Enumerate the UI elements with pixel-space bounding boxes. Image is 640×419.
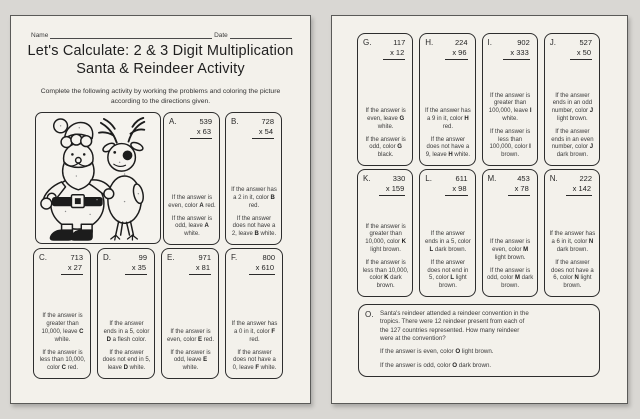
- multiplier: x 50: [570, 48, 592, 60]
- coloring-directions: If the answer is greater than 100,000, l…: [486, 93, 535, 161]
- direction-line: If the answer has a 2 in it, color B red…: [230, 187, 278, 210]
- problem-header: D. 99 x 35: [101, 252, 152, 275]
- multiplier: x 63: [190, 127, 212, 139]
- multiplication-problem: 453 x 78: [508, 174, 530, 196]
- direction-line: If the answer ends in a 5, color L dark …: [424, 231, 471, 254]
- worksheet-page-2: G. 117 x 12 If the answer is even, leave…: [331, 15, 628, 404]
- problem-box: A. 539 x 63 If the answer is even, color…: [163, 112, 220, 245]
- multiplication-problem: 99 x 35: [125, 253, 147, 275]
- name-blank-line: [50, 31, 212, 39]
- problem-box: F. 800 x 610 If the answer has a 0 in it…: [225, 248, 283, 379]
- problem-header: B. 728 x 54: [229, 116, 279, 139]
- direction-line: If the answer is even, leave G white.: [362, 108, 409, 131]
- coloring-directions: If the answer ends in a 5, color D a fle…: [101, 321, 152, 374]
- direction-line: If the answer is greater than 100,000, l…: [487, 93, 534, 124]
- problem-letter: B.: [231, 117, 239, 126]
- problem-row-ab: A. 539 x 63 If the answer is even, color…: [163, 112, 282, 245]
- multiplication-problem: 539 x 63: [190, 117, 212, 139]
- direction-line: If the answer is less than 100,000, colo…: [487, 129, 534, 160]
- problem-letter: N.: [550, 174, 558, 183]
- problem-letter: G.: [363, 38, 371, 47]
- multiplicand: 99: [125, 253, 147, 263]
- direction-line: If the answer is greater than 10,000, le…: [38, 313, 87, 344]
- word-problem-letter: O.: [365, 310, 377, 372]
- multiplicand: 611: [445, 174, 467, 184]
- multiplier: x 333: [503, 48, 529, 60]
- worksheet-page-1: Name Date Let's Calculate: 2 & 3 Digit M…: [10, 15, 311, 404]
- problem-letter: K.: [363, 174, 371, 183]
- problem-header: A. 539 x 63: [167, 116, 217, 139]
- multiplicand: 224: [445, 38, 467, 48]
- direction-line: If the answer is greater than 10,000, co…: [362, 224, 409, 255]
- multiplication-problem: 222 x 142: [566, 174, 592, 196]
- direction-line: If the answer is even, color M light bro…: [487, 239, 534, 262]
- multiplicand: 800: [249, 253, 275, 263]
- problem-row-cdef: C. 713 x 27 If the answer is greater tha…: [33, 248, 283, 379]
- multiplicand: 971: [189, 253, 211, 263]
- problem-box: K. 330 x 159 If the answer is greater th…: [357, 169, 413, 297]
- problem-box: B. 728 x 54 If the answer has a 2 in it,…: [225, 112, 282, 245]
- problem-box: H. 224 x 96 If the answer has a 9 in it,…: [419, 33, 475, 166]
- multiplication-problem: 971 x 81: [189, 253, 211, 275]
- direction-line: If the answer has a 9 in it, color H red…: [424, 108, 471, 131]
- problem-letter: C.: [39, 253, 47, 262]
- direction-line: If the answer does not end in 5, leave D…: [102, 350, 151, 373]
- multiplier: x 81: [189, 263, 211, 275]
- coloring-directions: If the answer has a 0 in it, color F red…: [229, 321, 280, 374]
- name-label: Name: [31, 32, 48, 39]
- problem-box: C. 713 x 27 If the answer is greater tha…: [33, 248, 91, 379]
- multiplier: x 54: [252, 127, 274, 139]
- worksheet-title-line1: Let's Calculate: 2 & 3 Digit Multiplicat…: [11, 43, 310, 59]
- problem-box: L. 611 x 98 If the answer ends in a 5, c…: [419, 169, 475, 297]
- direction-line: If the answer is less than 10,000, color…: [38, 350, 87, 373]
- direction-line: If the answer is odd, color G black.: [362, 137, 409, 160]
- problem-row-kn: K. 330 x 159 If the answer is greater th…: [357, 169, 600, 297]
- direction-line: If the answer is even, color E red.: [166, 329, 215, 345]
- problem-header: M. 453 x 78: [486, 173, 535, 196]
- problem-header: E. 971 x 81: [165, 252, 216, 275]
- direction-line: If the answer is less than 10,000, color…: [362, 260, 409, 291]
- name-date-row: Name Date: [31, 31, 294, 39]
- coloring-directions: If the answer has a 9 in it, color H red…: [423, 108, 472, 161]
- direction-line: If the answer is odd, color O dark brown…: [380, 362, 532, 370]
- multiplication-problem: 728 x 54: [252, 117, 274, 139]
- multiplier: x 610: [249, 263, 275, 275]
- problem-row-gj: G. 117 x 12 If the answer is even, leave…: [357, 33, 600, 166]
- coloring-directions: If the answer has a 6 in it, color N dar…: [548, 231, 597, 292]
- multiplicand: 222: [566, 174, 592, 184]
- worksheet-title-line2: Santa & Reindeer Activity: [11, 61, 310, 77]
- problem-header: C. 713 x 27: [37, 252, 88, 275]
- direction-line: If the answer does not have a 0, leave F…: [230, 350, 279, 373]
- direction-line: If the answer is odd, leave A white.: [168, 216, 216, 239]
- multiplicand: 902: [503, 38, 529, 48]
- problem-letter: I.: [488, 38, 492, 47]
- multiplication-problem: 224 x 96: [445, 38, 467, 60]
- problem-letter: F.: [231, 253, 237, 262]
- multiplier: x 142: [566, 184, 592, 196]
- direction-line: If the answer has a 6 in it, color N dar…: [549, 231, 596, 254]
- word-problem-directions: If the answer is even, color O light bro…: [380, 348, 532, 370]
- coloring-directions: If the answer is even, color M light bro…: [486, 239, 535, 292]
- problem-header: F. 800 x 610: [229, 252, 280, 275]
- word-problem-text: Santa's reindeer attended a reindeer con…: [380, 310, 532, 343]
- multiplier: x 78: [508, 184, 530, 196]
- problem-letter: J.: [550, 38, 556, 47]
- problem-box: I. 902 x 333 If the answer is greater th…: [482, 33, 538, 166]
- santa-reindeer-illustration: [35, 112, 161, 244]
- multiplier: x 27: [61, 263, 83, 275]
- multiplicand: 527: [570, 38, 592, 48]
- direction-line: If the answer is odd, color M dark brown…: [487, 268, 534, 291]
- problem-header: K. 330 x 159: [361, 173, 410, 196]
- multiplicand: 728: [252, 117, 274, 127]
- problem-header: H. 224 x 96: [423, 37, 472, 60]
- direction-line: If the answer does not have a 9, leave H…: [424, 137, 471, 160]
- direction-line: If the answer is even, color O light bro…: [380, 348, 532, 356]
- word-problem-box: O. Santa's reindeer attended a reindeer …: [358, 304, 600, 377]
- multiplication-problem: 117 x 12: [383, 38, 405, 60]
- problem-letter: A.: [169, 117, 177, 126]
- word-problem-body: Santa's reindeer attended a reindeer con…: [380, 310, 532, 372]
- multiplicand: 539: [190, 117, 212, 127]
- direction-line: If the answer is even, color A red.: [168, 195, 216, 211]
- direction-line: If the answer does not have a 2, leave B…: [230, 216, 278, 239]
- problem-box: G. 117 x 12 If the answer is even, leave…: [357, 33, 413, 166]
- multiplicand: 713: [61, 253, 83, 263]
- direction-line: If the answer ends in an even number, co…: [549, 129, 596, 160]
- coloring-directions: If the answer ends in a 5, color L dark …: [423, 231, 472, 292]
- problem-header: G. 117 x 12: [361, 37, 410, 60]
- santa-reindeer-drawing: [36, 113, 160, 243]
- multiplicand: 453: [508, 174, 530, 184]
- multiplier: x 98: [445, 184, 467, 196]
- coloring-directions: If the answer has a 2 in it, color B red…: [229, 187, 279, 240]
- problem-header: J. 527 x 50: [548, 37, 597, 60]
- problem-box: J. 527 x 50 If the answer ends in an odd…: [544, 33, 600, 166]
- coloring-directions: If the answer is greater than 10,000, le…: [37, 313, 88, 374]
- problem-box: M. 453 x 78 If the answer is even, color…: [482, 169, 538, 297]
- multiplication-problem: 800 x 610: [249, 253, 275, 275]
- problem-header: I. 902 x 333: [486, 37, 535, 60]
- direction-line: If the answer ends in an odd number, col…: [549, 93, 596, 124]
- coloring-directions: If the answer is even, color E red.If th…: [165, 329, 216, 374]
- direction-line: If the answer does not end in 5, color L…: [424, 260, 471, 291]
- coloring-directions: If the answer is even, leave G white.If …: [361, 108, 410, 161]
- multiplier: x 159: [379, 184, 405, 196]
- direction-line: If the answer has a 0 in it, color F red…: [230, 321, 279, 344]
- multiplication-problem: 902 x 333: [503, 38, 529, 60]
- multiplier: x 96: [445, 48, 467, 60]
- problem-box: E. 971 x 81 If the answer is even, color…: [161, 248, 219, 379]
- multiplier: x 12: [383, 48, 405, 60]
- problem-letter: M.: [488, 174, 497, 183]
- problem-letter: L.: [425, 174, 432, 183]
- multiplication-problem: 330 x 159: [379, 174, 405, 196]
- multiplication-problem: 713 x 27: [61, 253, 83, 275]
- coloring-directions: If the answer is greater than 10,000, co…: [361, 224, 410, 292]
- problem-header: N. 222 x 142: [548, 173, 597, 196]
- worksheet-instructions: Complete the following activity by worki…: [37, 87, 284, 106]
- coloring-directions: If the answer is even, color A red.If th…: [167, 195, 217, 240]
- problem-box: D. 99 x 35 If the answer ends in a 5, co…: [97, 248, 155, 379]
- multiplier: x 35: [125, 263, 147, 275]
- multiplication-problem: 527 x 50: [570, 38, 592, 60]
- multiplication-problem: 611 x 98: [445, 174, 467, 196]
- direction-line: If the answer does not have a 6, color N…: [549, 260, 596, 291]
- date-blank-line: [230, 31, 292, 39]
- problem-letter: H.: [425, 38, 433, 47]
- multiplicand: 117: [383, 38, 405, 48]
- problem-letter: D.: [103, 253, 111, 262]
- direction-line: If the answer ends in a 5, color D a fle…: [102, 321, 151, 344]
- multiplicand: 330: [379, 174, 405, 184]
- problem-letter: E.: [167, 253, 175, 262]
- problem-box: N. 222 x 142 If the answer has a 6 in it…: [544, 169, 600, 297]
- date-label: Date: [214, 32, 228, 39]
- direction-line: If the answer is odd, leave E white.: [166, 350, 215, 373]
- coloring-directions: If the answer ends in an odd number, col…: [548, 93, 597, 161]
- problem-header: L. 611 x 98: [423, 173, 472, 196]
